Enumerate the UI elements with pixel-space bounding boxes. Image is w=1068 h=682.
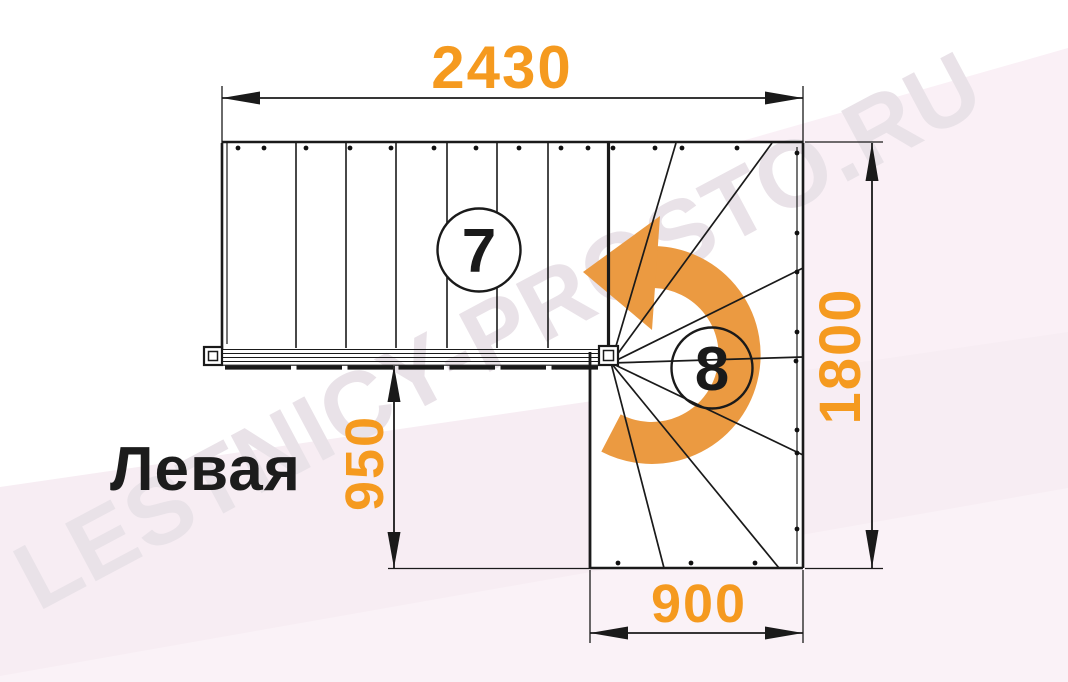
newel-post-left-inner (209, 352, 218, 361)
stair-plan-diagram: LESTNICY-PROSTO.RU (0, 0, 1068, 682)
orientation-label: Левая (110, 435, 301, 504)
dimension-value-900: 900 (651, 574, 747, 634)
dimension-value-950: 950 (335, 415, 395, 511)
step-count-straight: 7 (438, 209, 521, 292)
dimension-value-1800: 1800 (808, 287, 873, 424)
step-count-value-8: 8 (695, 335, 729, 404)
dimension-value-2430: 2430 (431, 34, 572, 101)
step-count-value-7: 7 (462, 217, 496, 286)
diagram-svg: LESTNICY-PROSTO.RU (0, 0, 1068, 682)
newel-post-center-inner (604, 351, 614, 361)
